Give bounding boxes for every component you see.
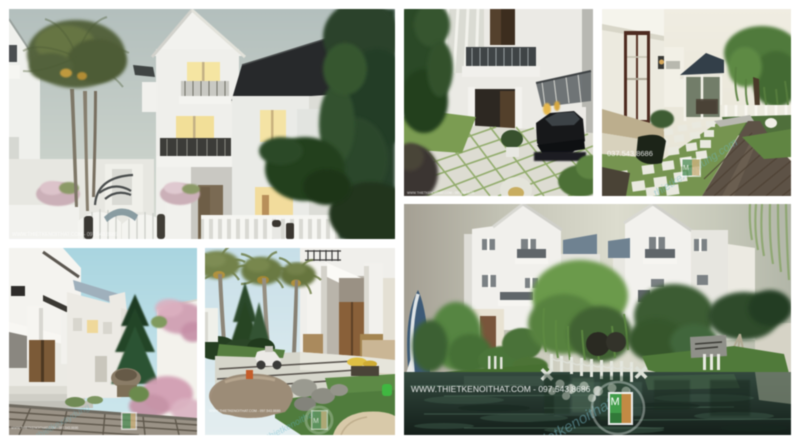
svg-text:M: M [683,165,689,172]
svg-text:M: M [611,396,620,408]
svg-text:WWW.THIETKENOITHAT.COM - 097.5: WWW.THIETKENOITHAT.COM - 097.543.8686 [209,409,281,413]
svg-text:WWW.THIETKENOITHAT.COM - 097.5: WWW.THIETKENOITHAT.COM - 097.543.8686 [407,191,474,195]
svg-text:WWW.THIETKENOITHAT.COM - 097.5: WWW.THIETKENOITHAT.COM - 097.543.8686 [411,384,591,394]
svg-text:037.543.8686: 037.543.8686 [607,149,653,158]
svg-text:WWW.THIETKENOITHAT.COM - 097.5: WWW.THIETKENOITHAT.COM - 097.543.8686 [12,232,118,238]
svg-text:M: M [313,418,319,425]
